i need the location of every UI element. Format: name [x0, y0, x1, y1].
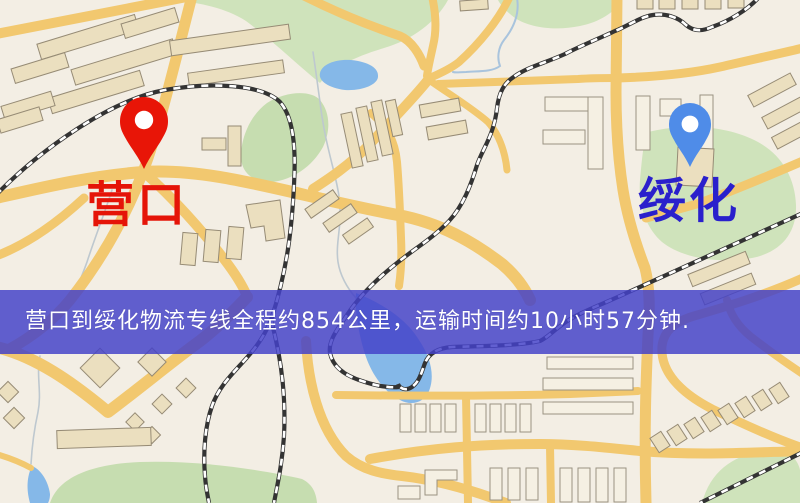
origin-pin-body[interactable] [120, 97, 168, 169]
destination-pin-dot [682, 116, 699, 133]
origin-label: 营口 [86, 181, 188, 229]
route-info-banner: 营口到绥化物流专线全程约854公里，运输时间约10小时57分钟. [0, 290, 800, 354]
destination-label: 绥化 [638, 177, 740, 225]
map-canvas [0, 0, 800, 503]
route-info-text: 营口到绥化物流专线全程约854公里，运输时间约10小时57分钟. [25, 309, 690, 334]
map-container: 营口 绥化 营口到绥化物流专线全程约854公里，运输时间约10小时57分钟. [0, 0, 800, 503]
origin-pin-icon[interactable] [120, 97, 168, 169]
origin-pin-dot [135, 111, 153, 129]
